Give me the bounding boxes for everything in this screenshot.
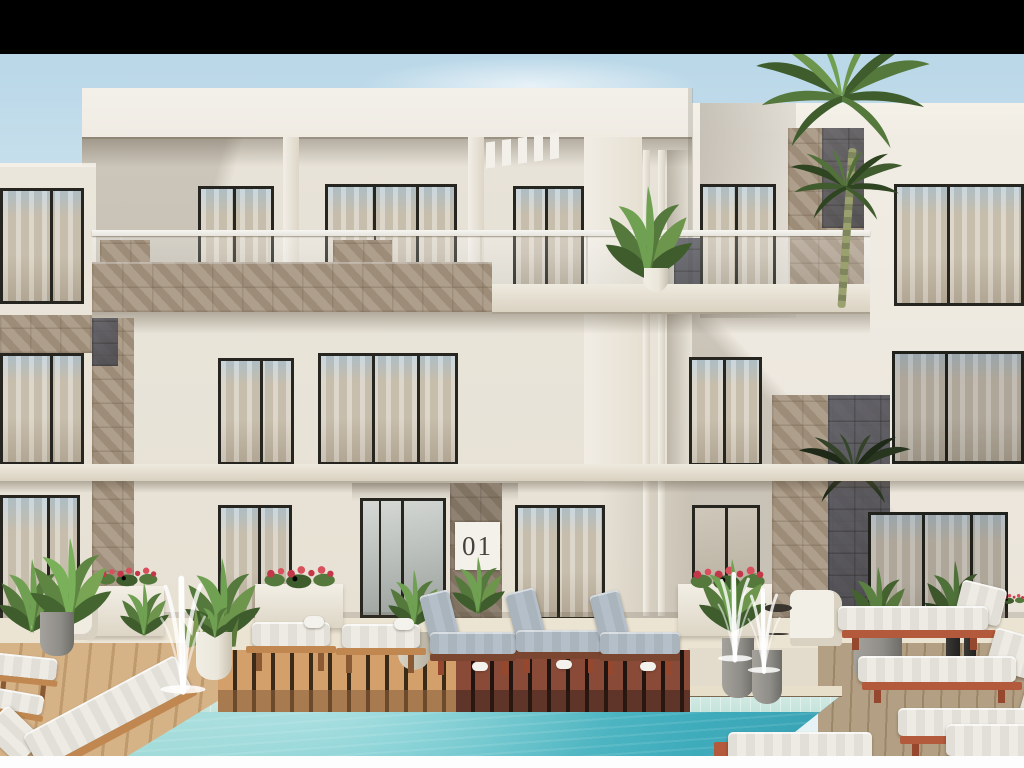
lounger-platform-2 (336, 614, 426, 676)
rolled-towel (556, 660, 572, 669)
lounger-leg (502, 661, 508, 675)
lounger-frame (336, 648, 426, 655)
window-mullion (723, 360, 726, 463)
rolled-towel (394, 618, 414, 630)
rolled-towel (304, 616, 324, 628)
lounger-leg (438, 661, 444, 675)
lounger-cushion (516, 630, 602, 652)
lounger-frame (246, 646, 336, 653)
lounger-leg (318, 653, 324, 671)
lounger-platform-3 (424, 590, 516, 674)
window-mullion (260, 361, 263, 462)
lounger-platform-4 (510, 588, 602, 672)
window-mullion (947, 187, 950, 303)
outdoor-chair (790, 590, 842, 646)
rolled-towel (472, 662, 488, 671)
lounger-cushion (600, 632, 680, 654)
balcony-stone-slab (92, 262, 492, 312)
fountain-spray-left (158, 560, 208, 702)
lounger-platform-5 (594, 590, 682, 674)
lounger-platform-1 (246, 612, 336, 674)
window-mullion (50, 191, 53, 301)
window-f2-a (218, 358, 294, 465)
lounger-leg (608, 661, 614, 675)
palm-tree-lower-fronds (786, 148, 906, 240)
fountain-spray-right-2 (746, 576, 782, 680)
floor-divider-shadow (0, 481, 1024, 493)
left-stone-band (0, 315, 92, 353)
window-mullion (417, 356, 420, 462)
window-f2-b (318, 353, 458, 465)
balcony-underside-shadow (92, 312, 870, 334)
architectural-rendering: 01 (0, 0, 1024, 768)
window-f3-rightwing-b (894, 184, 1024, 306)
lounger-frame (430, 654, 516, 661)
floor-divider-band (0, 464, 1024, 481)
lounger-leg (346, 655, 352, 673)
letterbox-bottom (0, 756, 1024, 768)
lounger-leg (408, 655, 414, 673)
window-mullion (50, 356, 53, 462)
window-mullion (372, 356, 375, 462)
balcony-plant-pot (644, 268, 668, 292)
left-slate-patch (92, 318, 118, 366)
lounger-leg (256, 653, 262, 671)
lounger-frame (516, 652, 602, 659)
letterbox-top (0, 0, 1024, 54)
window-f2-c (689, 357, 762, 466)
lounger-cushion (430, 632, 516, 654)
lounger-leg (912, 744, 919, 756)
lounger-leg (666, 661, 672, 675)
window-mullion (945, 354, 948, 461)
window-f3-leftwing (0, 188, 84, 304)
lounger-leg (524, 659, 530, 673)
lounger-leg (874, 690, 881, 703)
door-stile (379, 501, 381, 615)
plant-pot-dark (40, 612, 74, 656)
lounger-cushion (838, 606, 988, 630)
rolled-towel (640, 662, 656, 671)
railing-top-bar (92, 230, 870, 236)
red-flowers-b (262, 560, 338, 590)
lounger-frame (600, 654, 680, 661)
platform-face-dark (456, 690, 690, 712)
platform-face-light (218, 690, 456, 712)
roof-beam (82, 88, 692, 137)
lounger-cushion (946, 724, 1024, 756)
window-f2-leftwing (0, 353, 84, 465)
